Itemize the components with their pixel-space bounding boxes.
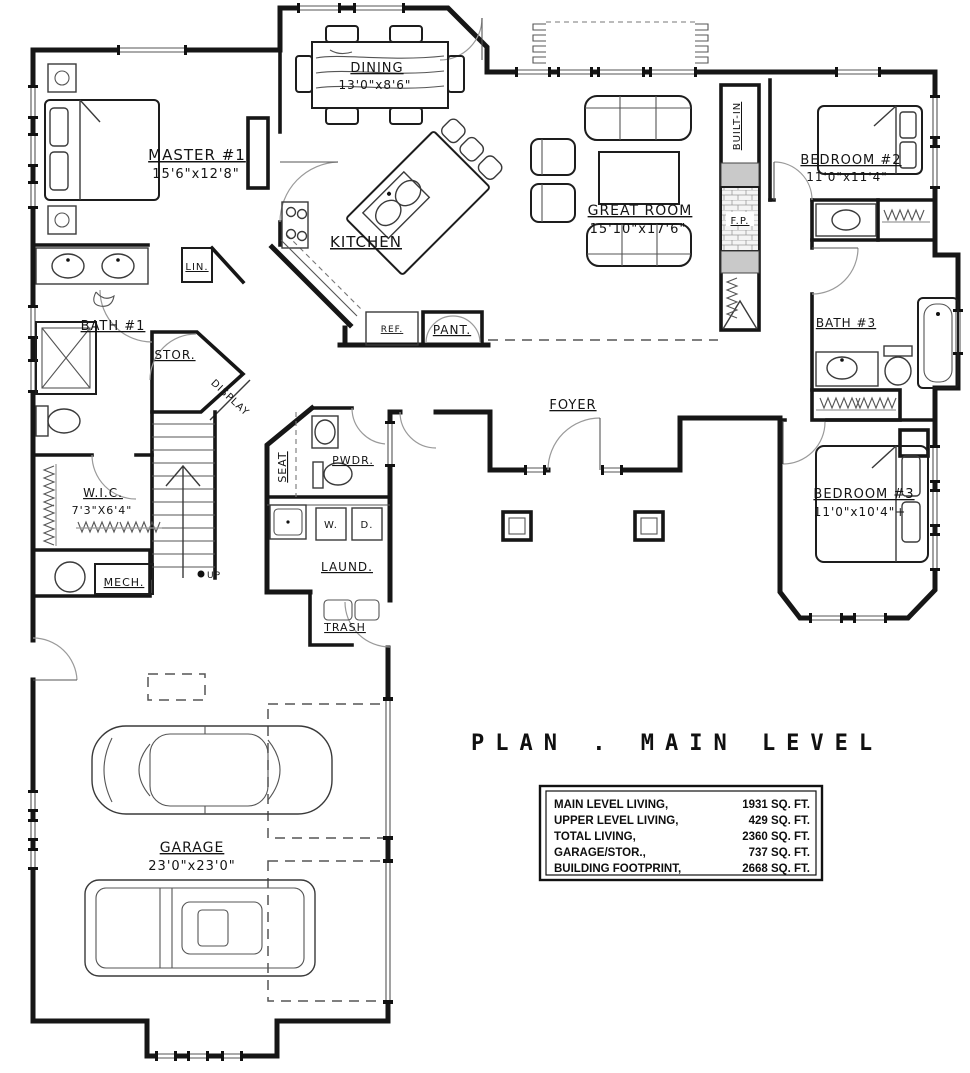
great-room-furniture <box>531 96 691 266</box>
room-label-powder: PWDR. <box>332 454 374 467</box>
builtin-closet-hangers <box>727 278 737 318</box>
room-dims-dining: 13'0"x8'6" <box>339 78 412 92</box>
stats-row-label: GARAGE/STOR., <box>554 847 646 859</box>
room-label-laundry: LAUND. <box>321 560 373 574</box>
room-dims-master: 15'6"x12'8" <box>152 167 239 182</box>
room-label-bath3: BATH #3 <box>816 316 876 330</box>
stats-row-label: BUILDING FOOTPRINT, <box>554 863 681 875</box>
room-label-pantry: PANT. <box>433 323 471 337</box>
room-label-linen: LIN. <box>185 262 208 273</box>
room-label-dining: DINING <box>350 61 403 76</box>
chase <box>900 430 928 456</box>
room-label-seat: SEAT <box>276 451 289 482</box>
room-dims-great-room: 15'10"x17'6" <box>590 222 687 237</box>
room-label-bedroom2: BEDROOM #2 <box>800 153 901 168</box>
room-label-bedroom3: BEDROOM #3 <box>813 487 914 502</box>
stats-row-label: UPPER LEVEL LIVING, <box>554 815 678 827</box>
room-label-bath1: BATH #1 <box>81 319 146 334</box>
stats-row-value: 2668 SQ. FT. <box>742 863 810 875</box>
room-label-storage: STOR. <box>154 348 195 362</box>
stats-row-label: TOTAL LIVING, <box>554 831 636 843</box>
room-dims-garage: 23'0"x23'0" <box>148 859 235 874</box>
room-label-fireplace: F.P. <box>731 216 750 227</box>
car-suv <box>85 880 315 976</box>
room-label-trash: TRASH <box>323 621 366 634</box>
dashed-lines <box>148 235 718 1001</box>
floor-plan-canvas: MASTER #1 15'6"x12'8" DINING 13'0"x8'6" … <box>0 0 970 1073</box>
room-dims-wic: 7'3"X6'4" <box>72 504 133 517</box>
floor-plan-sheet: MASTER #1 15'6"x12'8" DINING 13'0"x8'6" … <box>0 0 970 1073</box>
master-bed <box>45 64 159 234</box>
stats-row-value: 2360 SQ. FT. <box>742 831 810 843</box>
room-dims-bedroom3: 11'0"x10'4"+ <box>814 505 907 519</box>
stats-row-label: MAIN LEVEL LIVING, <box>554 799 668 811</box>
stats-table: MAIN LEVEL LIVING, 1931 SQ. FT. UPPER LE… <box>540 786 822 880</box>
room-label-wic: W.I.C. <box>83 486 123 500</box>
trash-bins <box>324 600 379 620</box>
bath1-fixtures <box>36 248 148 436</box>
deck-outline <box>533 22 708 63</box>
staircase <box>152 424 215 578</box>
room-dims-bedroom2: 11'0"x11'4" <box>806 170 888 184</box>
room-label-garage: GARAGE <box>160 840 225 856</box>
bedroom3-furniture <box>816 446 928 562</box>
room-label-fridge: REF. <box>381 325 404 335</box>
car-sedan <box>92 726 332 814</box>
stats-row-value: 737 SQ. FT. <box>749 847 810 859</box>
room-label-great-room: GREAT ROOM <box>588 203 693 219</box>
room-label-mech: MECH. <box>104 576 145 589</box>
powder-fixtures <box>312 416 352 488</box>
mech-fixtures <box>55 562 85 592</box>
room-label-kitchen: KITCHEN <box>330 233 402 251</box>
room-label-built-in: BUILT-IN <box>732 102 743 151</box>
kitchen-cabinet <box>248 118 268 188</box>
page-title: PLAN . MAIN LEVEL <box>471 731 883 756</box>
stats-row-value: 429 SQ. FT. <box>749 815 810 827</box>
room-label-foyer: FOYER <box>549 398 596 413</box>
porch-columns <box>503 512 663 540</box>
label-dryer: D. <box>361 520 374 531</box>
label-washer: W. <box>324 520 338 531</box>
room-label-master: MASTER #1 <box>148 146 246 164</box>
stats-row-value: 1931 SQ. FT. <box>742 799 810 811</box>
label-stairs-up: UP <box>207 571 221 581</box>
